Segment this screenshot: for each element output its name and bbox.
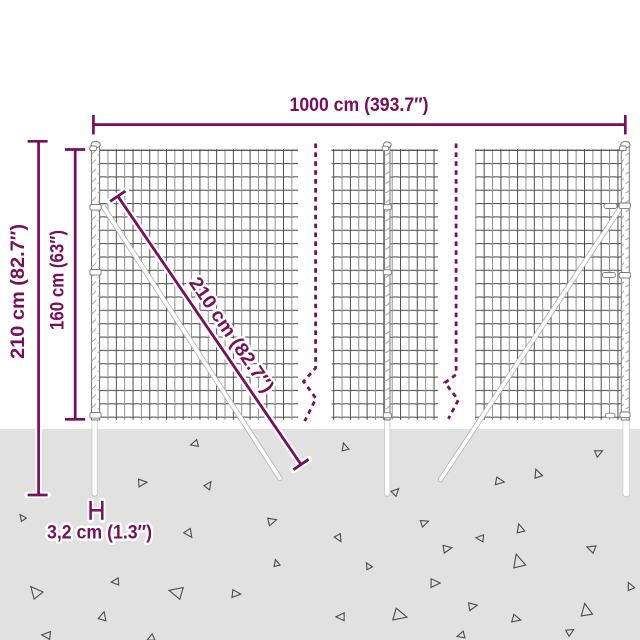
svg-text:160 cm (63″): 160 cm (63″) xyxy=(48,230,69,330)
svg-text:210 cm (82.7″): 210 cm (82.7″) xyxy=(8,224,29,359)
svg-text:3,2 cm (1.3″): 3,2 cm (1.3″) xyxy=(47,522,152,543)
svg-text:1000 cm (393.7″): 1000 cm (393.7″) xyxy=(290,95,429,116)
